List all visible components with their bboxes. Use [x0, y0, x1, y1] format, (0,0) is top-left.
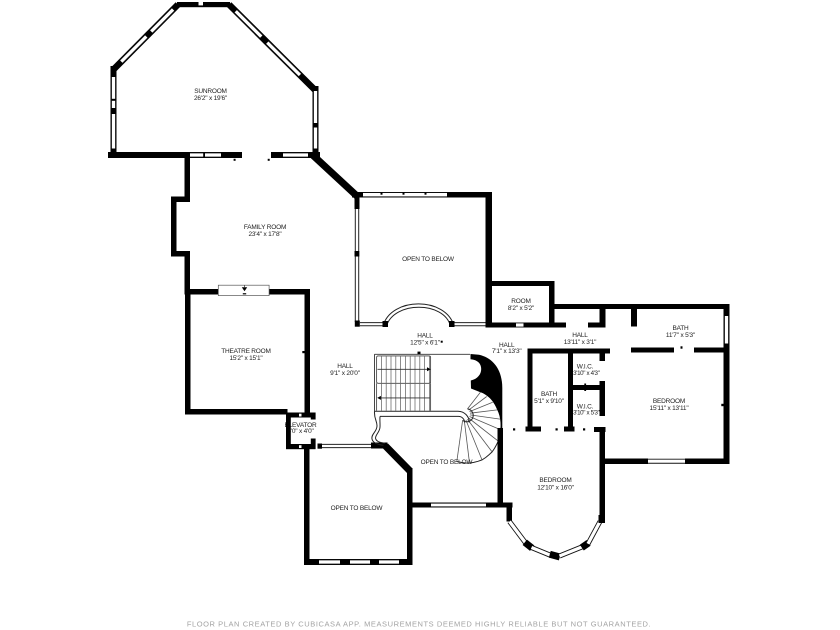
svg-text:4'0" x 4'0": 4'0" x 4'0"	[287, 428, 314, 435]
svg-text:12'10" x 16'0": 12'10" x 16'0"	[537, 485, 574, 492]
svg-text:BATH: BATH	[672, 325, 689, 332]
svg-text:OPEN TO BELOW: OPEN TO BELOW	[402, 256, 455, 263]
svg-text:FAMILY ROOM: FAMILY ROOM	[244, 224, 286, 231]
svg-text:12'5" x 6'1": 12'5" x 6'1"	[410, 340, 441, 347]
svg-text:ROOM: ROOM	[511, 298, 530, 305]
svg-text:SUNROOM: SUNROOM	[194, 88, 227, 95]
svg-text:26'2" x 19'6": 26'2" x 19'6"	[194, 95, 228, 102]
svg-text:FLOOR PLAN CREATED BY CUBICASA: FLOOR PLAN CREATED BY CUBICASA APP. MEAS…	[187, 619, 651, 628]
svg-text:23'4" x 17'8": 23'4" x 17'8"	[248, 231, 282, 238]
svg-text:7'1" x 13'3": 7'1" x 13'3"	[492, 348, 523, 355]
svg-text:HALL: HALL	[417, 332, 433, 339]
svg-text:11'7" x 5'3": 11'7" x 5'3"	[666, 332, 696, 339]
svg-text:HALL: HALL	[572, 332, 588, 339]
svg-text:13'11" x 3'1": 13'11" x 3'1"	[564, 339, 597, 346]
svg-text:5'1" x 9'10": 5'1" x 9'10"	[534, 398, 565, 405]
svg-text:9'1" x 20'0": 9'1" x 20'0"	[330, 370, 361, 377]
svg-text:15'2" x 15'1": 15'2" x 15'1"	[229, 355, 263, 362]
svg-text:3'10" x 5'3": 3'10" x 5'3"	[573, 410, 599, 417]
svg-text:3'10" x 4'3": 3'10" x 4'3"	[573, 370, 599, 377]
svg-text:THEATRE ROOM: THEATRE ROOM	[221, 348, 270, 355]
svg-text:HALL: HALL	[337, 363, 353, 370]
svg-text:BATH: BATH	[541, 391, 558, 398]
svg-text:15'11" x 13'11": 15'11" x 13'11"	[650, 405, 690, 412]
svg-text:OPEN TO BELOW: OPEN TO BELOW	[331, 505, 384, 512]
svg-text:8'2" x 5'2": 8'2" x 5'2"	[508, 305, 535, 312]
svg-text:OPEN TO BELOW: OPEN TO BELOW	[421, 459, 474, 466]
svg-text:BEDROOM: BEDROOM	[539, 477, 571, 484]
svg-text:BEDROOM: BEDROOM	[653, 398, 685, 405]
